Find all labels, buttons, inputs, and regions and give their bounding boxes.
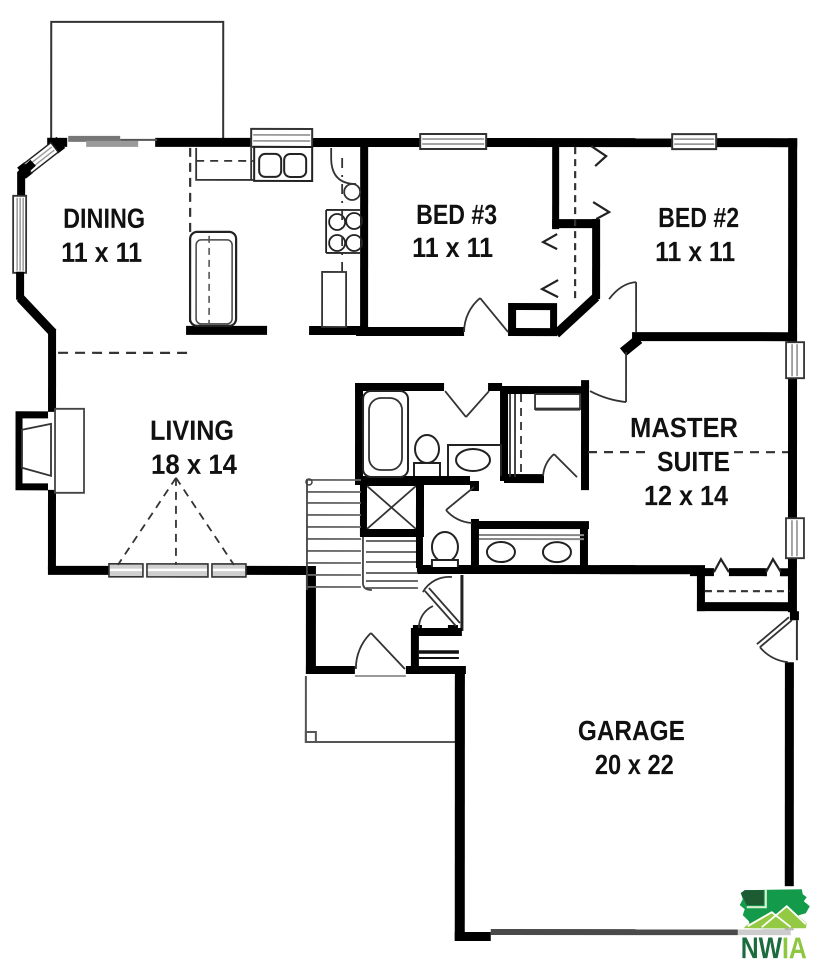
svg-text:DINING: DINING [63,203,145,234]
svg-text:12 x 14: 12 x 14 [644,480,728,511]
svg-text:LIVING: LIVING [150,415,234,446]
svg-text:BED #3: BED #3 [416,199,497,230]
svg-text:20 x 22: 20 x 22 [595,749,674,780]
svg-text:NWIA: NWIA [741,932,807,960]
svg-text:11 x 11: 11 x 11 [655,236,735,267]
svg-text:11 x 11: 11 x 11 [412,232,493,263]
svg-text:GARAGE: GARAGE [578,715,685,746]
svg-text:18 x 14: 18 x 14 [151,449,237,480]
svg-text:BED #2: BED #2 [658,202,739,233]
svg-text:MASTER: MASTER [630,412,738,443]
svg-text:SUITE: SUITE [657,446,730,477]
svg-text:11 x 11: 11 x 11 [61,237,142,268]
